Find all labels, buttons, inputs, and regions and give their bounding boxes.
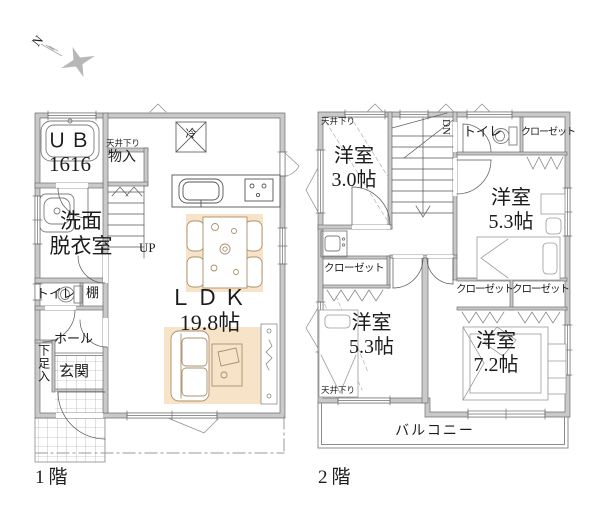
floorplan-canvas: N ＵＢ 1616 天井下り 物入 UP 洗面 脱衣室 トイレ 棚 ホール 下足… — [0, 0, 600, 509]
closet-label-ne: クローゼット — [521, 128, 567, 139]
note-ceiling-drop-f2-nw: 天井下り — [321, 117, 355, 126]
stairs-down-label: DN — [439, 119, 451, 135]
note-ceiling-drop-f1: 天井下り — [106, 139, 140, 148]
balcony-label: バルコニー — [390, 425, 480, 440]
room-label-ldk-size: 19.8帖 — [148, 311, 272, 334]
room-label-se: 洋室 7.2帖 — [425, 330, 567, 377]
note-ceiling-drop-f2-sw: 天井下り — [321, 386, 355, 395]
closet-label-mid-left: クローゼット — [456, 284, 510, 295]
refrigerator-label: 冷 — [176, 129, 206, 141]
room-label-storage: 物入 — [108, 151, 136, 166]
room-label-toilet-f1: トイレ — [36, 287, 75, 301]
room-label-shelf: 棚 — [86, 286, 99, 300]
floor2-caption: 2階 — [318, 468, 355, 488]
room-label-washroom: 洗面 脱衣室 — [36, 209, 126, 259]
room-label-ne: 洋室 5.3帖 — [455, 187, 567, 234]
room-label-shoe-storage: 下足入 — [37, 344, 50, 383]
closet-label-mid-right: クローゼット — [512, 284, 566, 295]
closet-label-w: クローゼット — [320, 263, 388, 274]
room-label-sw: 洋室 5.3帖 — [318, 312, 425, 359]
room-label-toilet-f2: トイレ — [463, 125, 502, 139]
room-label-unit-bath-size: 1616 — [35, 153, 105, 175]
room-label-unit-bath: ＵＢ — [35, 131, 105, 152]
room-label-hall: ホール — [54, 332, 93, 346]
room-label-entrance: 玄関 — [59, 365, 89, 381]
floor1-caption: 1階 — [35, 468, 72, 488]
room-label-nw: 洋室 3.0帖 — [318, 145, 390, 192]
stairs-up-label: UP — [139, 241, 156, 255]
compass-icon — [41, 41, 100, 83]
room-label-ldk: ＬＤＫ — [148, 286, 272, 309]
